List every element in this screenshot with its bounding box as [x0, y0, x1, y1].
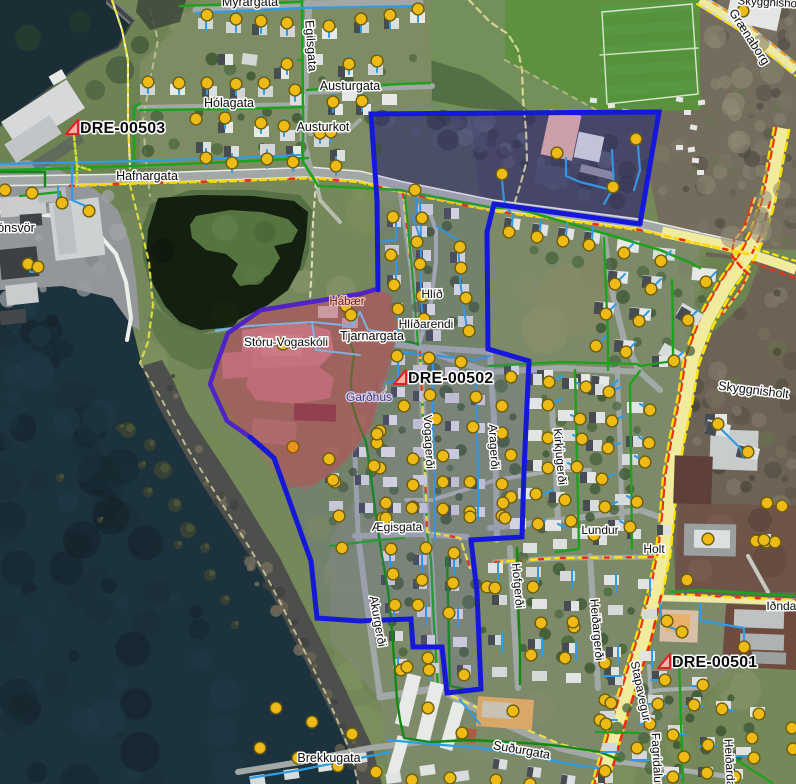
svg-text:Mýrargata: Mýrargata: [222, 0, 278, 9]
svg-text:Hábær: Hábær: [329, 296, 364, 308]
svg-text:DRE-00503: DRE-00503: [80, 120, 165, 137]
svg-text:DRE-00502: DRE-00502: [408, 370, 493, 387]
svg-text:Tjarnargata: Tjarnargata: [340, 329, 404, 343]
svg-text:DRE-00501: DRE-00501: [672, 654, 757, 671]
svg-text:Fagridalur: Fagridalur: [649, 732, 666, 784]
svg-text:Hólagata: Hólagata: [204, 96, 254, 110]
svg-text:Heiðardalur: Heiðardalur: [721, 738, 738, 784]
svg-text:ónsvör: ónsvör: [0, 221, 35, 235]
svg-text:Aragerði: Aragerði: [486, 424, 502, 470]
svg-text:Hlíðarendi: Hlíðarendi: [399, 317, 454, 331]
svg-text:Garðhús: Garðhús: [346, 390, 392, 404]
svg-text:Austurkot: Austurkot: [297, 120, 350, 134]
svg-text:Ægisgata: Ægisgata: [372, 520, 423, 534]
svg-text:Vogagerði: Vogagerði: [421, 414, 438, 469]
svg-text:Hlíð: Hlíð: [421, 287, 443, 301]
svg-text:Hafnargata: Hafnargata: [116, 169, 178, 183]
svg-text:Holt: Holt: [643, 542, 665, 556]
svg-text:Lundur: Lundur: [581, 523, 618, 537]
svg-text:Iðndalur: Iðndalur: [766, 599, 796, 613]
svg-text:Brekkugata: Brekkugata: [297, 751, 360, 765]
svg-text:Stóru-Vogaskóli: Stóru-Vogaskóli: [244, 335, 328, 349]
svg-text:Austurgata: Austurgata: [320, 79, 381, 93]
